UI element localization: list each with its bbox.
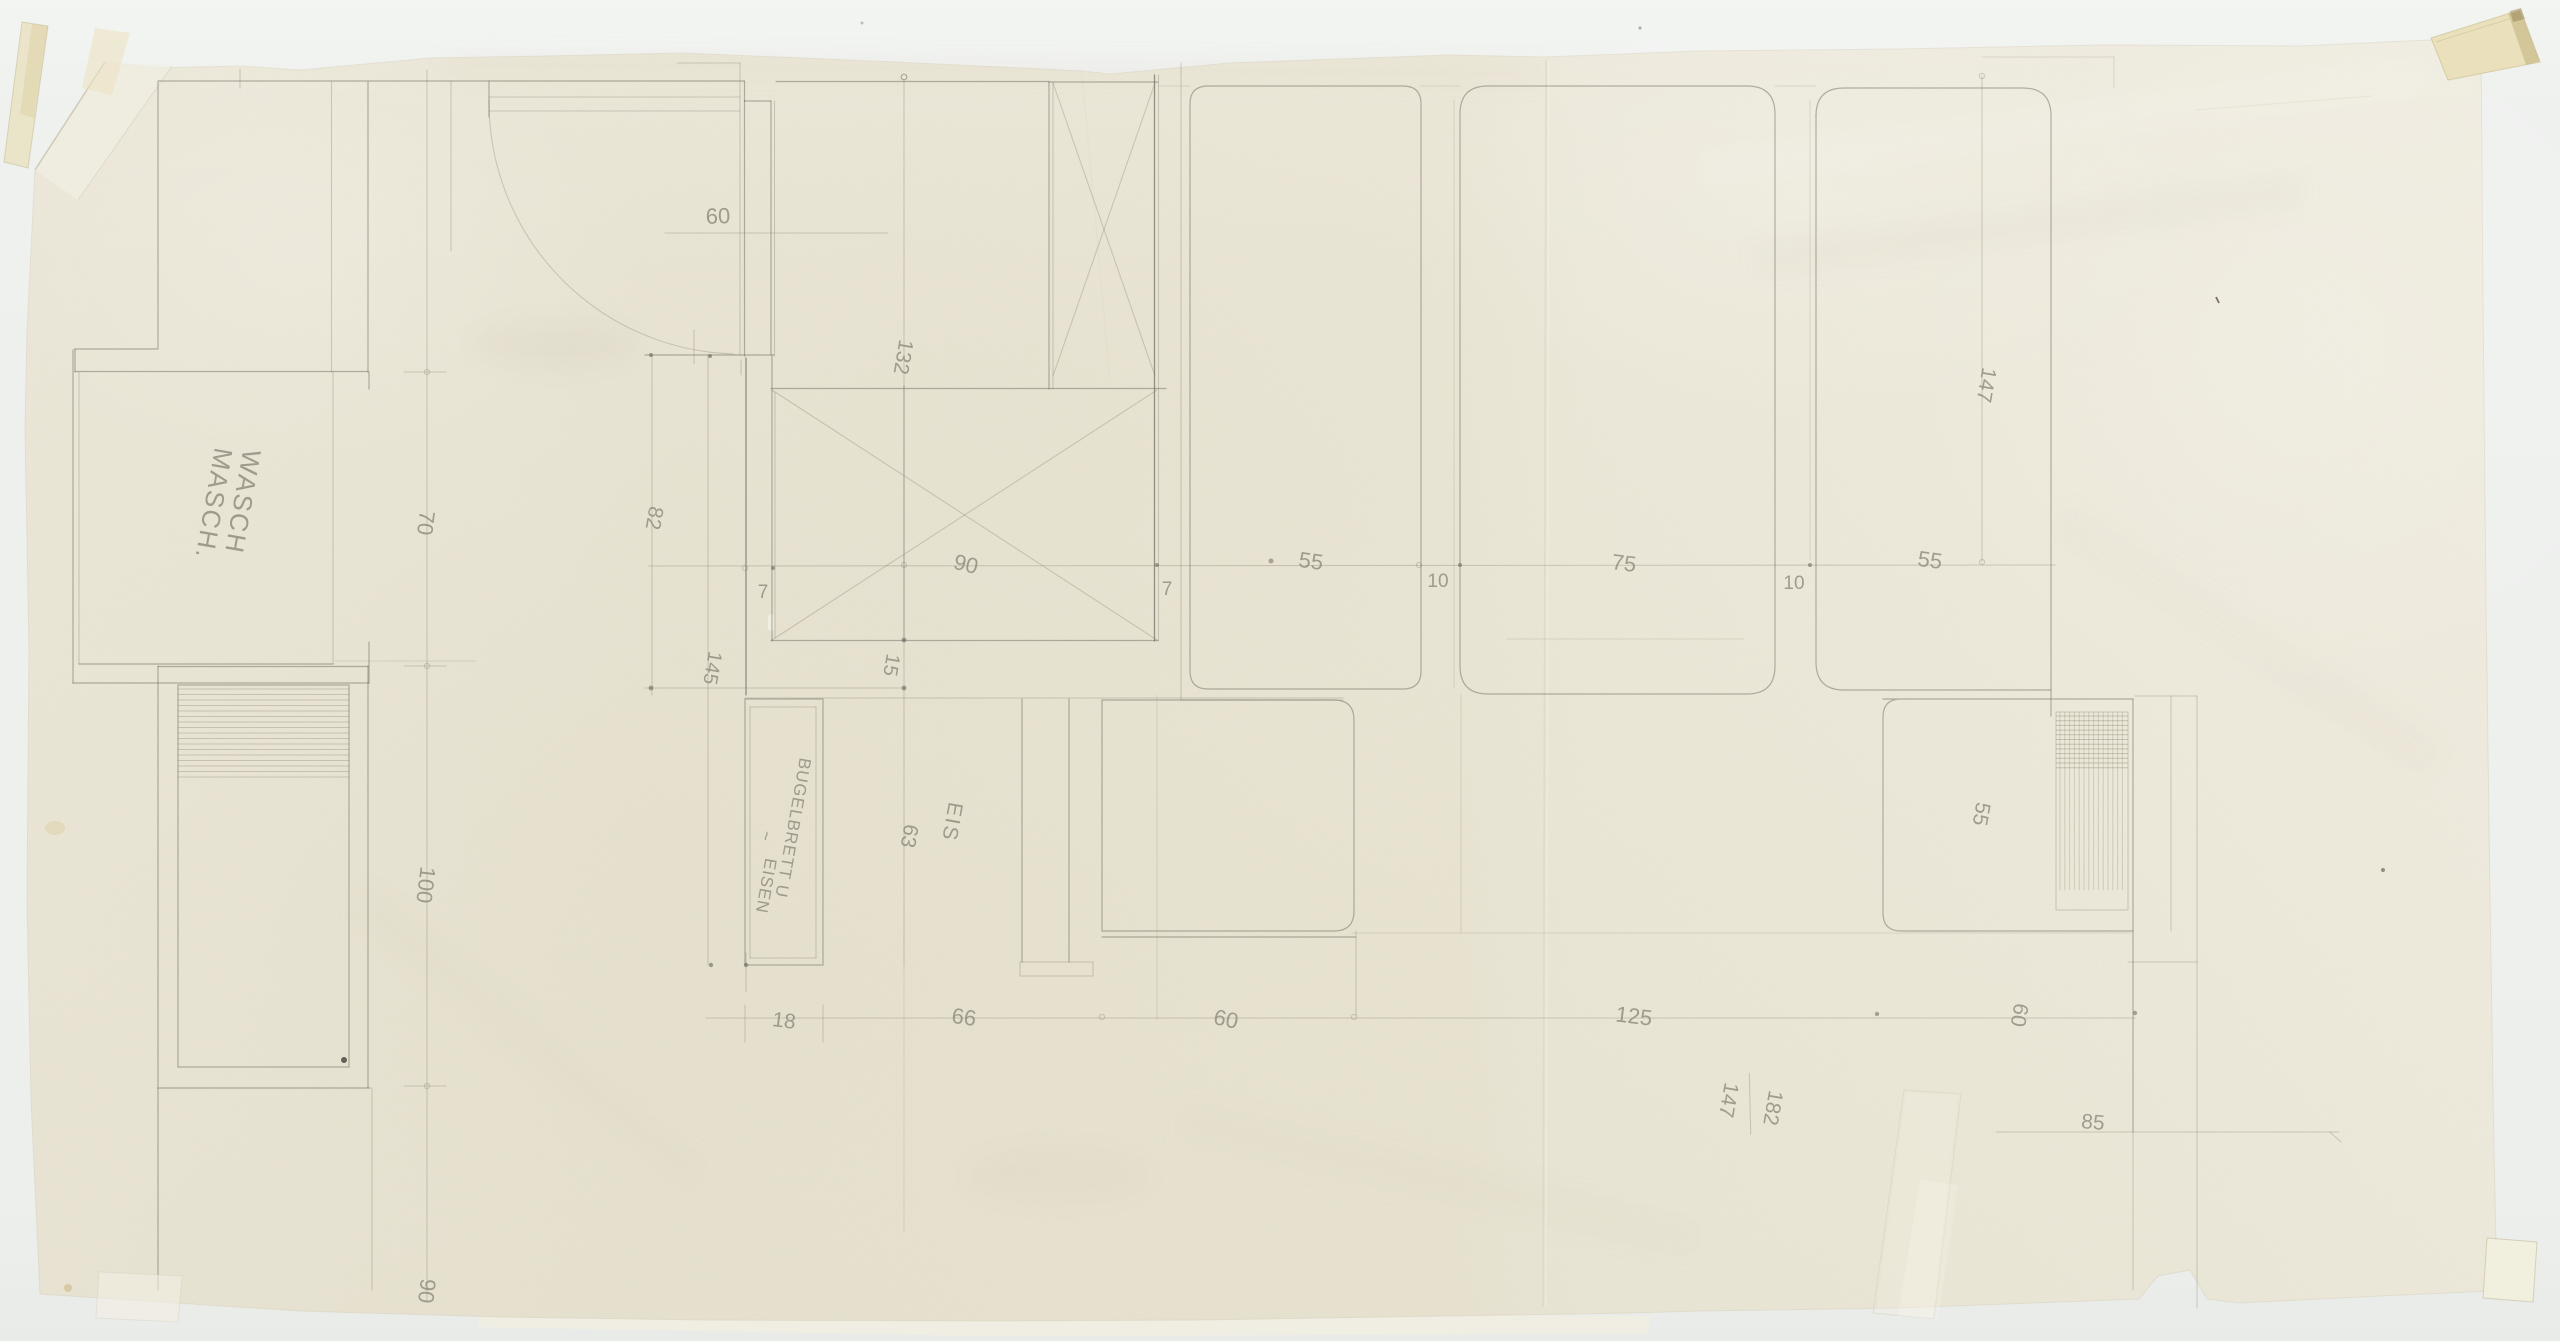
svg-text:90: 90 [413,1277,441,1304]
svg-text:66: 66 [950,1003,978,1031]
svg-text:63: 63 [896,823,923,850]
svg-text:7: 7 [758,582,769,603]
svg-text:75: 75 [1610,549,1637,577]
svg-text:7: 7 [1162,579,1173,600]
svg-text:15: 15 [878,652,904,678]
svg-text:10: 10 [1427,571,1448,592]
svg-text:85: 85 [2080,1110,2105,1135]
svg-text:60: 60 [1211,1004,1240,1034]
svg-text:70: 70 [412,509,440,536]
svg-text:60: 60 [2006,1002,2033,1029]
svg-text:10: 10 [1783,573,1804,594]
svg-text:100: 100 [411,865,440,904]
svg-text:55: 55 [1916,546,1944,574]
svg-text:18: 18 [771,1008,797,1034]
svg-text:55: 55 [1297,547,1325,575]
svg-text:125: 125 [1614,1001,1653,1030]
svg-text:55: 55 [1968,801,1995,828]
svg-text:60: 60 [705,203,730,229]
svg-text:82: 82 [641,505,668,532]
